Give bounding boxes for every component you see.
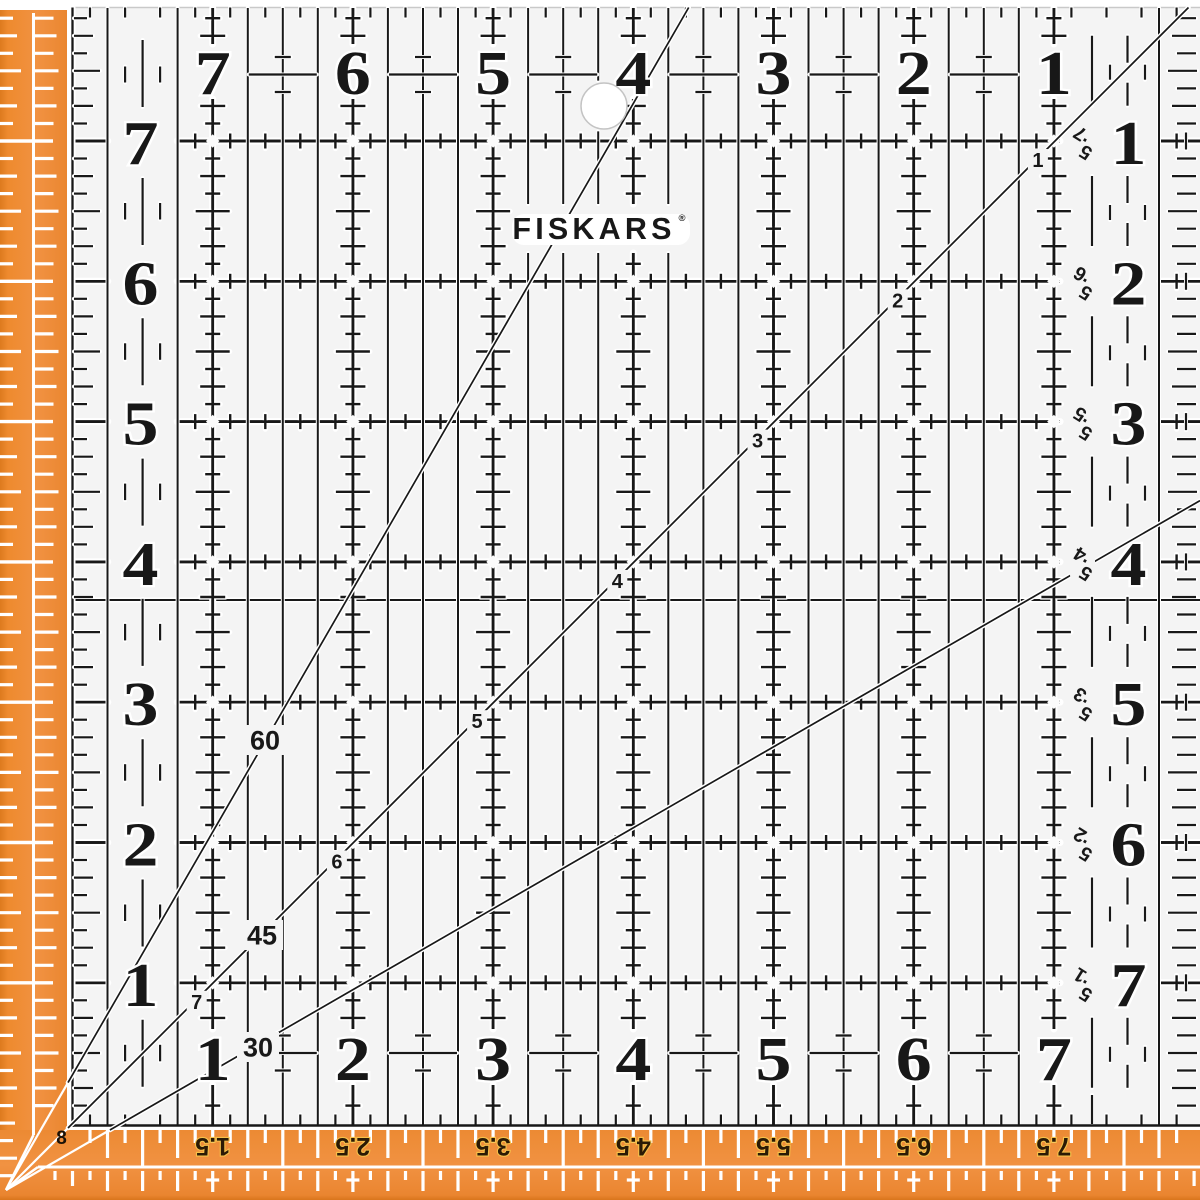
svg-text:FISKARS: FISKARS xyxy=(512,212,675,246)
svg-text:7: 7 xyxy=(1036,1025,1072,1094)
svg-text:3: 3 xyxy=(752,431,763,453)
svg-text:60: 60 xyxy=(250,726,280,756)
svg-text:6.5: 6.5 xyxy=(896,1132,931,1160)
svg-text:5: 5 xyxy=(756,1025,792,1094)
svg-text:5: 5 xyxy=(1111,670,1147,739)
svg-text:7: 7 xyxy=(1111,950,1147,1019)
svg-text:1: 1 xyxy=(123,950,159,1019)
svg-text:5.5: 5.5 xyxy=(756,1132,791,1160)
svg-text:2.5: 2.5 xyxy=(335,1132,370,1160)
svg-text:1: 1 xyxy=(1032,150,1043,172)
svg-text:5: 5 xyxy=(472,711,483,733)
svg-text:1: 1 xyxy=(1111,109,1147,178)
svg-text:2: 2 xyxy=(892,290,903,312)
svg-text:6: 6 xyxy=(896,1025,932,1094)
svg-text:3: 3 xyxy=(756,39,792,108)
svg-text:6: 6 xyxy=(331,852,342,874)
svg-text:2: 2 xyxy=(896,39,932,108)
svg-text:6: 6 xyxy=(123,249,159,318)
svg-text:2: 2 xyxy=(335,1025,371,1094)
svg-text:6: 6 xyxy=(335,39,371,108)
svg-text:3: 3 xyxy=(475,1025,511,1094)
svg-text:5: 5 xyxy=(475,39,511,108)
svg-text:4.5: 4.5 xyxy=(616,1132,651,1160)
svg-text:®: ® xyxy=(679,213,686,224)
svg-text:2: 2 xyxy=(123,810,159,879)
svg-text:7.5: 7.5 xyxy=(1036,1132,1071,1160)
svg-text:1: 1 xyxy=(195,1025,231,1094)
svg-text:4: 4 xyxy=(1111,529,1147,598)
svg-text:4: 4 xyxy=(123,529,159,598)
svg-text:7: 7 xyxy=(123,109,159,178)
svg-text:1.5: 1.5 xyxy=(195,1132,230,1160)
svg-text:1: 1 xyxy=(1036,39,1072,108)
svg-text:5: 5 xyxy=(123,389,159,458)
svg-text:45: 45 xyxy=(247,921,277,951)
svg-text:2: 2 xyxy=(1111,249,1147,318)
svg-text:3.5: 3.5 xyxy=(476,1132,511,1160)
svg-text:7: 7 xyxy=(195,39,231,108)
svg-text:4: 4 xyxy=(615,1025,651,1094)
svg-text:4: 4 xyxy=(612,571,624,593)
svg-text:6: 6 xyxy=(1111,810,1147,879)
svg-text:3: 3 xyxy=(123,670,159,739)
svg-text:7: 7 xyxy=(191,992,202,1014)
svg-text:30: 30 xyxy=(243,1033,273,1063)
svg-text:3: 3 xyxy=(1111,389,1147,458)
svg-text:8: 8 xyxy=(56,1128,67,1149)
